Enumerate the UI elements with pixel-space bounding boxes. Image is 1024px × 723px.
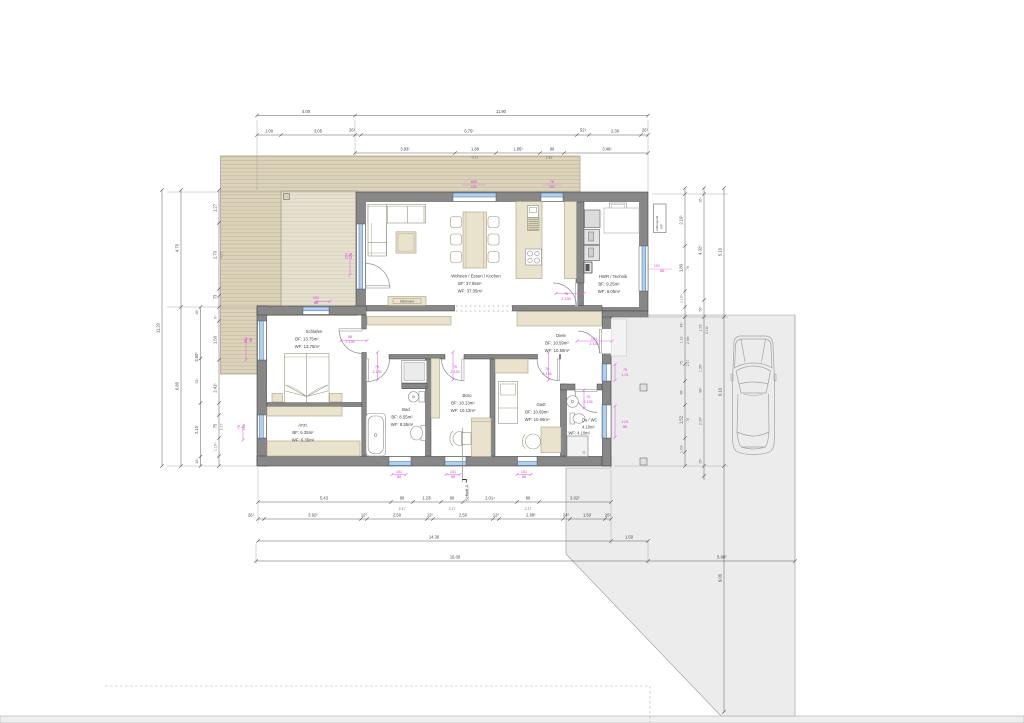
svg-text:6.75²: 6.75²	[464, 129, 474, 134]
svg-text:88: 88	[348, 335, 352, 339]
svg-text:4.70: 4.70	[175, 243, 180, 252]
svg-text:6.80: 6.80	[175, 381, 180, 390]
svg-text:5.88⁵: 5.88⁵	[717, 555, 727, 560]
svg-text:Wohnen / Essen / Kochen: Wohnen / Essen / Kochen	[451, 274, 501, 279]
svg-text:11.90: 11.90	[496, 109, 507, 114]
svg-text:76: 76	[237, 425, 241, 429]
svg-text:96¹: 96¹	[680, 389, 684, 395]
svg-text:1.27: 1.27	[213, 203, 218, 212]
svg-text:76: 76	[686, 266, 690, 270]
svg-text:76: 76	[586, 395, 590, 399]
svg-text:101: 101	[396, 470, 402, 474]
svg-text:1.80: 1.80	[679, 263, 684, 272]
svg-text:5.10: 5.10	[718, 247, 723, 256]
svg-text:2.135: 2.135	[542, 372, 551, 376]
svg-text:4.10m²: 4.10m²	[582, 425, 595, 430]
svg-text:2.50: 2.50	[459, 513, 468, 518]
svg-text:24⁵: 24⁵	[563, 513, 570, 518]
svg-text:Diele: Diele	[556, 333, 566, 338]
svg-text:2.17: 2.17	[525, 507, 532, 511]
svg-text:3.05: 3.05	[314, 129, 323, 134]
svg-text:BF: 37.85m²: BF: 37.85m²	[458, 281, 482, 286]
svg-text:1.00: 1.00	[265, 129, 274, 134]
svg-text:101: 101	[591, 337, 597, 341]
svg-text:73: 73	[213, 294, 218, 299]
svg-text:885: 885	[471, 180, 477, 184]
svg-text:101: 101	[471, 185, 477, 189]
svg-text:1.50: 1.50	[213, 335, 218, 344]
svg-text:75: 75	[680, 361, 684, 365]
svg-text:88: 88	[660, 269, 664, 273]
svg-text:99: 99	[550, 147, 555, 152]
svg-text:1.52: 1.52	[679, 415, 684, 424]
svg-text:3.50¹: 3.50¹	[194, 352, 199, 362]
svg-text:88: 88	[249, 338, 253, 342]
svg-text:86¹: 86¹	[699, 387, 703, 393]
svg-text:1.93: 1.93	[699, 325, 703, 332]
svg-text:2.17: 2.17	[399, 507, 406, 511]
svg-text:26¹: 26¹	[699, 197, 703, 203]
svg-text:WF: 6.35m²: WF: 6.35m²	[292, 438, 315, 443]
svg-text:6.10: 6.10	[718, 387, 723, 396]
svg-text:2.16¹: 2.16¹	[705, 325, 709, 334]
svg-text:16.00: 16.00	[450, 555, 461, 560]
svg-text:Gast: Gast	[536, 402, 546, 407]
svg-text:101: 101	[654, 264, 660, 268]
svg-text:1.50: 1.50	[583, 513, 592, 518]
svg-text:88: 88	[522, 475, 526, 479]
svg-text:226: 226	[349, 253, 353, 259]
svg-text:26¹: 26¹	[349, 128, 356, 133]
svg-text:251: 251	[345, 253, 349, 259]
svg-text:Schlafen: Schlafen	[306, 329, 323, 334]
svg-text:2.10: 2.10	[194, 425, 199, 434]
svg-text:2.68⁵: 2.68⁵	[526, 513, 536, 518]
svg-text:1.10: 1.10	[680, 337, 684, 344]
svg-text:2.50: 2.50	[393, 513, 402, 518]
svg-text:88: 88	[397, 475, 401, 479]
svg-text:BF: 10.69m²: BF: 10.69m²	[525, 410, 549, 415]
svg-text:4.00: 4.00	[302, 109, 311, 114]
svg-text:3.93¹: 3.93¹	[400, 147, 410, 152]
svg-text:101: 101	[244, 337, 248, 343]
svg-text:26¹: 26¹	[642, 128, 649, 133]
svg-text:2.17: 2.17	[686, 360, 690, 367]
svg-text:1.88: 1.88	[471, 147, 480, 152]
svg-text:2.135: 2.135	[589, 342, 598, 346]
svg-text:1.23¹: 1.23¹	[422, 496, 432, 501]
svg-text:76: 76	[545, 367, 549, 371]
svg-text:2.66¹: 2.66¹	[686, 335, 690, 344]
svg-text:2.10¹: 2.10¹	[679, 215, 684, 225]
svg-text:1.01: 1.01	[621, 373, 628, 377]
svg-text:52¹: 52¹	[580, 128, 587, 133]
svg-text:101: 101	[242, 424, 246, 430]
svg-text:BF: 8.55m²: BF: 8.55m²	[391, 415, 413, 420]
svg-text:2.39¹: 2.39¹	[699, 416, 703, 425]
svg-text:26¹: 26¹	[605, 513, 612, 518]
svg-text:2.42: 2.42	[546, 156, 553, 160]
svg-text:90: 90	[450, 496, 455, 501]
svg-text:HWR / Technik: HWR / Technik	[599, 274, 628, 279]
svg-text:3.92⁵: 3.92⁵	[308, 513, 318, 518]
svg-text:8⁴: 8⁴	[214, 315, 218, 319]
svg-text:26¹: 26¹	[195, 458, 199, 464]
svg-text:WF: 9.05m²: WF: 9.05m²	[598, 289, 621, 294]
svg-text:0.17: 0.17	[220, 252, 224, 259]
svg-text:Anzi.: Anzi.	[298, 423, 308, 428]
svg-text:BF: 13.75m²: BF: 13.75m²	[295, 337, 319, 342]
svg-text:Schnitt A: Schnitt A	[465, 485, 470, 501]
svg-text:76: 76	[375, 365, 379, 369]
svg-text:1.10¹: 1.10¹	[680, 294, 684, 303]
svg-text:5.43: 5.43	[320, 496, 329, 501]
svg-text:26¹: 26¹	[195, 309, 199, 315]
svg-text:4.32⁵: 4.32⁵	[698, 245, 703, 255]
svg-text:WF: 37.05m²: WF: 37.05m²	[458, 289, 483, 294]
svg-text:9.00: 9.00	[718, 573, 723, 582]
svg-text:2.17: 2.17	[449, 507, 456, 511]
svg-text:76: 76	[453, 365, 457, 369]
svg-text:2.30: 2.30	[611, 129, 620, 134]
svg-text:Du / WC: Du / WC	[582, 418, 598, 423]
svg-text:2.135: 2.135	[450, 370, 459, 374]
svg-text:101: 101	[521, 470, 527, 474]
svg-text:1.85³: 1.85³	[513, 147, 523, 152]
svg-text:76: 76	[564, 292, 568, 296]
svg-text:BF: 10.13m²: BF: 10.13m²	[451, 401, 475, 406]
svg-text:88: 88	[451, 475, 455, 479]
svg-text:BF: 10.59m²: BF: 10.59m²	[545, 341, 569, 346]
svg-text:1.36¹: 1.36¹	[699, 363, 703, 372]
svg-text:76: 76	[686, 418, 690, 422]
svg-text:12⁵: 12⁵	[427, 513, 434, 518]
svg-text:2.135: 2.135	[345, 340, 354, 344]
svg-text:11.20: 11.20	[156, 322, 161, 333]
svg-text:2.135: 2.135	[583, 400, 592, 404]
svg-text:1.50: 1.50	[625, 535, 634, 540]
svg-text:1.03¹: 1.03¹	[680, 444, 684, 453]
svg-text:2.135: 2.135	[561, 297, 570, 301]
svg-text:2.70: 2.70	[213, 250, 218, 259]
svg-text:2.135: 2.135	[372, 370, 381, 374]
svg-text:WF: 4.10m²: WF: 4.10m²	[569, 431, 591, 436]
svg-text:WF: 8.55m²: WF: 8.55m²	[391, 422, 414, 427]
svg-text:26¹: 26¹	[248, 513, 255, 518]
svg-text:3.46²: 3.46²	[602, 147, 612, 152]
svg-text:12⁵: 12⁵	[361, 513, 368, 518]
svg-text:Sideboard: Sideboard	[400, 300, 415, 304]
svg-text:3.02⁵: 3.02⁵	[570, 496, 580, 501]
svg-text:12⁵: 12⁵	[493, 513, 500, 518]
svg-text:52¹: 52¹	[195, 378, 199, 384]
svg-text:26¹: 26¹	[699, 458, 703, 464]
svg-text:2.17: 2.17	[220, 424, 224, 431]
svg-text:BF: 6.35m²: BF: 6.35m²	[292, 430, 314, 435]
svg-text:90: 90	[400, 496, 405, 501]
svg-text:101: 101	[450, 470, 456, 474]
svg-text:Außengerät: Außengerät	[655, 216, 659, 231]
svg-text:56¹: 56¹	[699, 306, 703, 312]
svg-text:90: 90	[526, 496, 531, 501]
svg-text:2.01⁴: 2.01⁴	[485, 496, 495, 501]
svg-text:Bad: Bad	[402, 407, 410, 412]
svg-text:1.16¹: 1.16¹	[214, 442, 218, 451]
svg-text:WF: 13.75m²: WF: 13.75m²	[295, 344, 320, 349]
svg-text:BF: 9.25m²: BF: 9.25m²	[598, 282, 620, 287]
svg-text:101: 101	[313, 296, 319, 300]
svg-text:WF: 10.69m²: WF: 10.69m²	[525, 417, 550, 422]
svg-text:0.17: 0.17	[472, 156, 479, 160]
svg-text:14.30: 14.30	[429, 535, 440, 540]
svg-text:WF: 10.13m²: WF: 10.13m²	[451, 408, 476, 413]
svg-text:76: 76	[550, 180, 554, 184]
svg-text:101: 101	[549, 185, 555, 189]
svg-text:88: 88	[314, 301, 318, 305]
svg-text:WP: WP	[660, 224, 664, 229]
svg-text:75: 75	[213, 423, 218, 428]
svg-text:88: 88	[623, 425, 627, 429]
svg-text:43²: 43²	[680, 322, 684, 328]
svg-text:Büro: Büro	[462, 393, 472, 398]
svg-text:1.01: 1.01	[621, 420, 628, 424]
svg-text:76: 76	[623, 368, 627, 372]
svg-text:2.41¹: 2.41¹	[213, 383, 218, 393]
